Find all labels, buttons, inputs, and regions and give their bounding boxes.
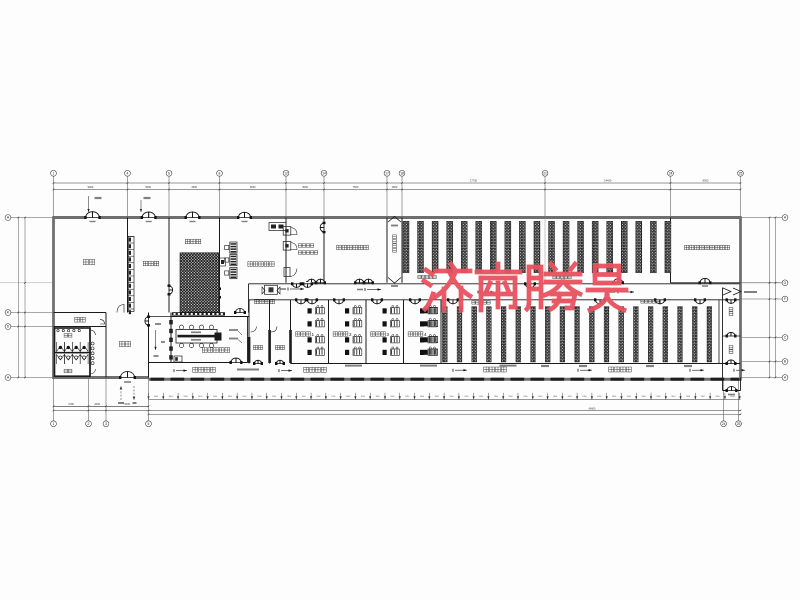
- svg-text:1800: 1800: [228, 396, 232, 398]
- svg-text:2000: 2000: [656, 396, 660, 398]
- svg-text:2000: 2000: [627, 396, 631, 398]
- svg-text:21: 21: [543, 171, 547, 175]
- svg-text:4500: 4500: [302, 185, 308, 189]
- svg-text:25: 25: [739, 171, 743, 175]
- svg-text:1800: 1800: [730, 396, 734, 398]
- svg-text:2000: 2000: [715, 396, 719, 398]
- svg-text:14400: 14400: [604, 179, 612, 183]
- svg-text:1800: 1800: [553, 396, 557, 398]
- svg-text:4: 4: [127, 171, 129, 175]
- svg-text:4300: 4300: [191, 185, 197, 189]
- svg-text:2000: 2000: [213, 396, 217, 398]
- svg-text:1800: 1800: [701, 396, 705, 398]
- svg-text:1800: 1800: [464, 396, 468, 398]
- svg-text:64800: 64800: [589, 407, 596, 410]
- svg-text:1800: 1800: [642, 396, 646, 398]
- svg-text:1800: 1800: [612, 396, 616, 398]
- svg-text:5: 5: [148, 422, 150, 426]
- svg-text:2000: 2000: [509, 396, 513, 398]
- svg-text:1: 1: [312, 332, 315, 337]
- svg-text:2000: 2000: [597, 396, 601, 398]
- svg-text:1800: 1800: [169, 396, 173, 398]
- svg-text:5000: 5000: [145, 185, 151, 189]
- svg-text:12: 12: [284, 171, 288, 175]
- svg-text:9900: 9900: [88, 185, 94, 189]
- svg-text:2000: 2000: [390, 396, 394, 398]
- svg-text:2000: 2000: [272, 396, 276, 398]
- svg-text:1800: 1800: [287, 396, 291, 398]
- svg-text:1800: 1800: [435, 396, 439, 398]
- svg-text:2000: 2000: [479, 396, 483, 398]
- svg-text:3: 3: [387, 332, 390, 337]
- svg-text:6: 6: [168, 171, 170, 175]
- svg-text:2: 2: [349, 332, 352, 337]
- svg-text:2000: 2000: [686, 396, 690, 398]
- svg-text:8: 8: [219, 171, 221, 175]
- svg-text:1800: 1800: [494, 396, 498, 398]
- svg-text:F: F: [784, 297, 786, 301]
- svg-text:1: 1: [53, 422, 55, 426]
- svg-text:1800: 1800: [523, 396, 527, 398]
- svg-text:1800: 1800: [316, 396, 320, 398]
- svg-text:2000: 2000: [420, 396, 424, 398]
- svg-text:1800: 1800: [671, 396, 675, 398]
- svg-text:17700: 17700: [470, 179, 478, 183]
- svg-text:4700: 4700: [68, 402, 74, 406]
- svg-text:1800: 1800: [346, 396, 350, 398]
- svg-text:4: 4: [424, 332, 427, 337]
- svg-text:24: 24: [722, 422, 726, 426]
- svg-text:1800: 1800: [375, 396, 379, 398]
- svg-text:2000: 2000: [538, 396, 542, 398]
- svg-text:25: 25: [737, 422, 741, 426]
- svg-text:17: 17: [385, 171, 389, 175]
- svg-text:1800: 1800: [198, 396, 202, 398]
- svg-text:2: 2: [88, 422, 90, 426]
- svg-text:2000: 2000: [242, 396, 246, 398]
- svg-text:2000: 2000: [331, 396, 335, 398]
- svg-text:3: 3: [105, 422, 107, 426]
- svg-text:5000: 5000: [124, 402, 130, 406]
- svg-text:18: 18: [400, 171, 404, 175]
- svg-text:14: 14: [322, 171, 326, 175]
- svg-text:2000: 2000: [302, 396, 306, 398]
- svg-text:24: 24: [669, 171, 673, 175]
- svg-text:1800: 1800: [405, 396, 409, 398]
- svg-text:2000: 2000: [361, 396, 365, 398]
- svg-text:2000: 2000: [94, 402, 100, 406]
- svg-text:2000: 2000: [449, 396, 453, 398]
- svg-text:1800: 1800: [392, 185, 398, 189]
- svg-text:1800: 1800: [257, 396, 261, 398]
- svg-text:6600: 6600: [250, 185, 256, 189]
- svg-text:7500: 7500: [353, 185, 359, 189]
- svg-text:G: G: [784, 281, 787, 285]
- svg-text:1800: 1800: [582, 396, 586, 398]
- svg-text:2000: 2000: [183, 396, 187, 398]
- svg-text:1: 1: [53, 171, 55, 175]
- svg-text:8300: 8300: [703, 179, 709, 183]
- svg-text:2000: 2000: [568, 396, 572, 398]
- svg-text:2000: 2000: [154, 396, 158, 398]
